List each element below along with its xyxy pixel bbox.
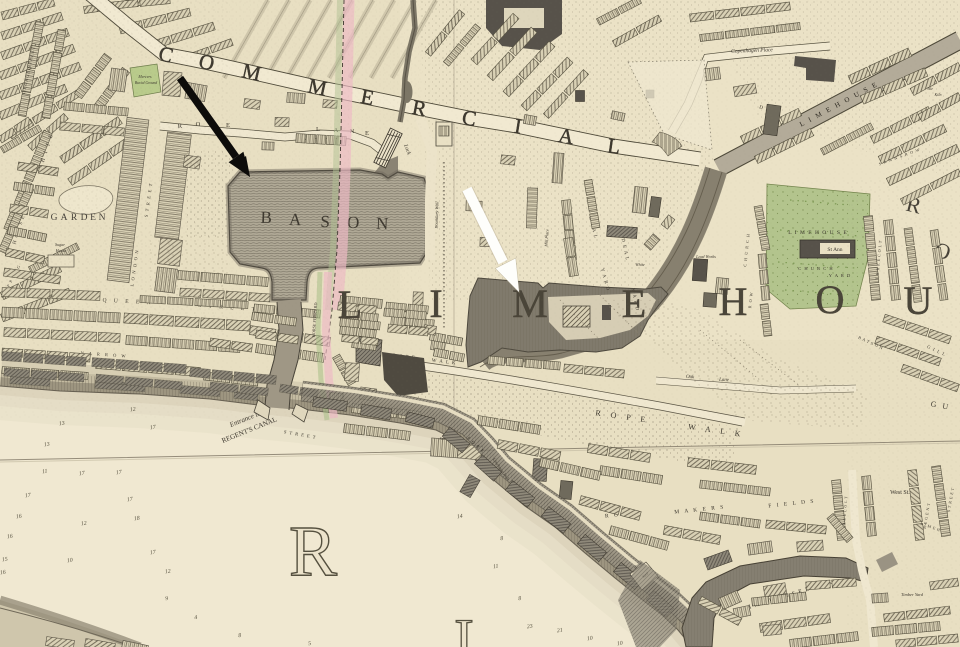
svg-text:16: 16 [0, 570, 6, 577]
svg-text:16: 16 [7, 534, 14, 541]
svg-text:15: 15 [2, 557, 9, 564]
svg-text:11: 11 [493, 564, 499, 571]
svg-text:13: 13 [59, 421, 66, 428]
svg-text:11: 11 [42, 469, 48, 476]
svg-text:12: 12 [165, 569, 172, 576]
svg-text:16: 16 [16, 514, 23, 521]
svg-text:I: I [454, 607, 474, 647]
svg-text:R: R [289, 511, 337, 591]
svg-text:10: 10 [617, 641, 624, 647]
svg-text:10: 10 [587, 636, 594, 643]
svg-text:10: 10 [67, 558, 74, 565]
svg-text:18: 18 [134, 516, 141, 523]
svg-text:12: 12 [81, 521, 88, 528]
svg-text:13: 13 [44, 442, 51, 449]
svg-text:23: 23 [527, 624, 534, 631]
svg-text:14: 14 [456, 513, 463, 521]
svg-text:21: 21 [557, 628, 564, 635]
